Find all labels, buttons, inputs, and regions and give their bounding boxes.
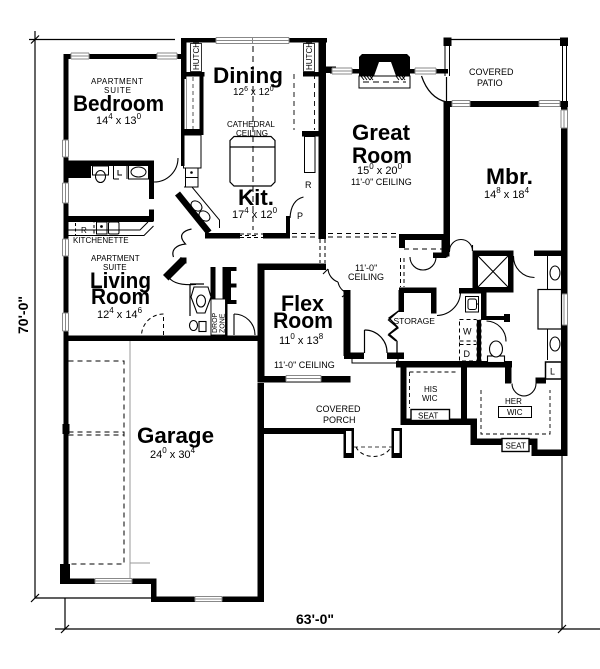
svg-text:HUTCH: HUTCH [305,42,314,70]
svg-text:CEILING: CEILING [348,272,384,282]
svg-text:W: W [463,327,472,337]
svg-text:124 x 146: 124 x 146 [97,306,143,321]
svg-text:63'-0": 63'-0" [296,611,334,627]
svg-text:P: P [297,211,303,221]
svg-text:148 x 184: 148 x 184 [484,186,530,201]
svg-text:STORAGE: STORAGE [394,316,436,326]
svg-text:Room: Room [273,308,333,333]
svg-text:COVERED: COVERED [316,404,361,414]
svg-text:COVERED: COVERED [469,67,514,77]
svg-text:APARTMENT: APARTMENT [91,77,143,86]
svg-text:WIC: WIC [507,408,523,417]
svg-text:R: R [81,226,87,235]
svg-text:CEILING: CEILING [236,129,268,138]
svg-text:DROP: DROP [212,312,219,333]
svg-text:WIC: WIC [422,394,438,403]
svg-text:11'-0" CEILING: 11'-0" CEILING [274,360,335,370]
svg-text:KITCHENETTE: KITCHENETTE [73,236,129,245]
svg-text:SEAT: SEAT [418,412,438,421]
svg-text:ZONE: ZONE [220,313,227,333]
svg-text:PATIO: PATIO [477,78,503,88]
svg-text:R: R [305,180,312,190]
svg-text:HIS: HIS [424,385,437,394]
svg-text:110 x 138: 110 x 138 [279,332,324,347]
svg-text:D: D [464,349,471,359]
svg-text:Bedroom: Bedroom [73,91,164,116]
svg-text:70'-0": 70'-0" [15,296,31,334]
svg-text:L: L [550,367,555,377]
svg-text:PORCH: PORCH [323,415,356,425]
svg-text:Great: Great [352,120,411,145]
svg-text:APARTMENT: APARTMENT [91,254,140,263]
svg-text:HER: HER [505,397,522,406]
svg-text:126 x 120: 126 x 120 [233,86,274,98]
svg-text:11'-0" CEILING: 11'-0" CEILING [351,177,412,187]
svg-text:240 x 304: 240 x 304 [150,446,196,461]
svg-text:SEAT: SEAT [506,442,526,451]
svg-text:174 x 120: 174 x 120 [232,206,278,221]
svg-text:Dining: Dining [213,63,283,88]
svg-text:144 x 130: 144 x 130 [96,112,142,127]
svg-text:HUTCH: HUTCH [192,42,201,70]
svg-text:Garage: Garage [137,423,214,448]
svg-text:CATHEDRAL: CATHEDRAL [227,120,275,129]
svg-text:150 x 200: 150 x 200 [357,162,403,177]
